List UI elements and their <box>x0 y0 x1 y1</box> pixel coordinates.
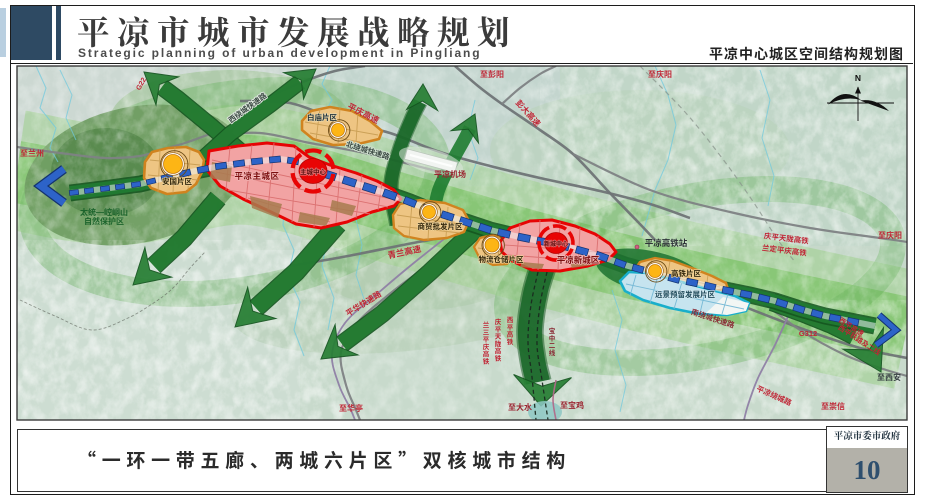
svg-text:主城中心: 主城中心 <box>300 167 327 176</box>
svg-text:庆: 庆 <box>495 317 502 326</box>
svg-text:宝: 宝 <box>549 326 556 335</box>
svg-text:至兰州: 至兰州 <box>20 148 44 158</box>
svg-text:平凉高铁站: 平凉高铁站 <box>645 238 688 248</box>
svg-text:陇: 陇 <box>495 339 502 348</box>
svg-text:高: 高 <box>507 330 514 339</box>
svg-text:自然保护区: 自然保护区 <box>84 216 124 226</box>
svg-text:铁: 铁 <box>483 357 490 366</box>
svg-text:太统—崆峒山: 太统—崆峒山 <box>80 207 128 217</box>
svg-text:新城中心: 新城中心 <box>544 240 568 248</box>
svg-text:铁: 铁 <box>495 354 502 363</box>
svg-text:至华亭: 至华亭 <box>339 403 363 413</box>
svg-text:西: 西 <box>507 316 514 324</box>
svg-text:N: N <box>855 73 861 83</box>
svg-text:高: 高 <box>483 349 490 358</box>
svg-text:平: 平 <box>483 336 490 344</box>
svg-text:三: 三 <box>483 329 490 336</box>
svg-text:至宝鸡: 至宝鸡 <box>560 400 584 410</box>
svg-text:至庆阳: 至庆阳 <box>648 69 672 79</box>
svg-text:平凉机场: 平凉机场 <box>434 169 466 179</box>
svg-text:中: 中 <box>549 333 556 342</box>
svg-text:天: 天 <box>495 333 502 341</box>
svg-text:平凉新城区: 平凉新城区 <box>557 255 600 265</box>
svg-text:兰: 兰 <box>483 320 490 329</box>
svg-text:至大水: 至大水 <box>508 402 532 412</box>
svg-text:白庙片区: 白庙片区 <box>307 112 337 122</box>
svg-text:至庆阳: 至庆阳 <box>878 230 902 240</box>
svg-text:物流仓储片区: 物流仓储片区 <box>479 254 524 264</box>
svg-text:商贸批发片区: 商贸批发片区 <box>418 221 463 231</box>
svg-text:铁: 铁 <box>507 337 514 346</box>
svg-text:至崇信: 至崇信 <box>821 401 845 411</box>
svg-text:远景预留发展片区: 远景预留发展片区 <box>655 289 715 299</box>
svg-text:庆: 庆 <box>483 342 490 351</box>
svg-text:平: 平 <box>495 325 502 333</box>
svg-text:至西安: 至西安 <box>877 372 901 382</box>
svg-text:平凉主城区: 平凉主城区 <box>234 171 279 181</box>
svg-text:安国片区: 安国片区 <box>162 176 192 186</box>
svg-text:高铁片区: 高铁片区 <box>671 268 701 278</box>
svg-text:G312: G312 <box>799 329 817 338</box>
svg-text:线: 线 <box>549 348 556 357</box>
svg-text:二: 二 <box>549 343 556 350</box>
svg-text:平: 平 <box>507 323 514 331</box>
svg-text:至彭阳: 至彭阳 <box>480 69 504 79</box>
svg-text:高: 高 <box>495 346 502 355</box>
